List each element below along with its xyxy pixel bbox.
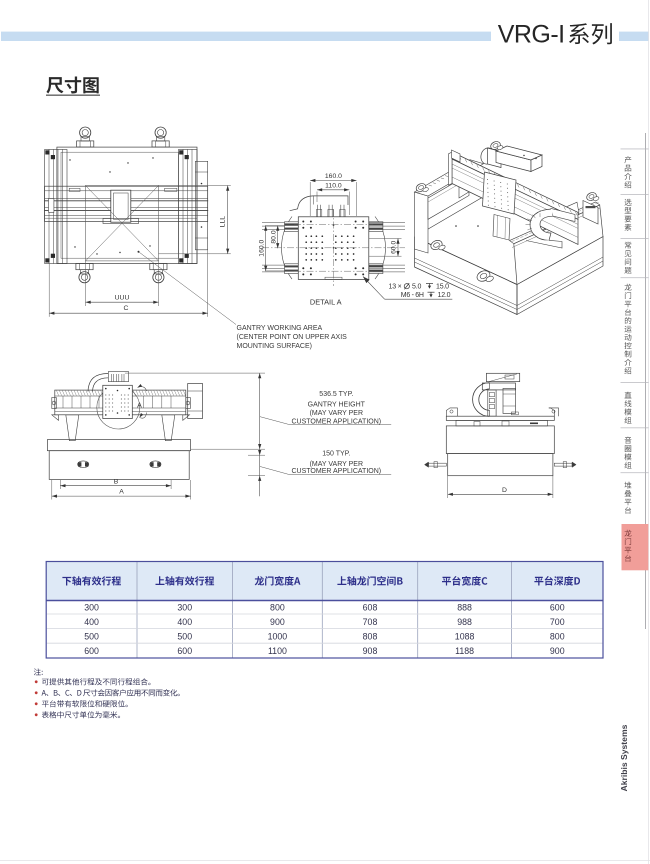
svg-text:150 TYP.: 150 TYP. xyxy=(322,450,350,457)
svg-text:GANTRY WORKING AREA: GANTRY WORKING AREA xyxy=(237,325,323,332)
svg-text:600: 600 xyxy=(84,646,99,656)
svg-text:B: B xyxy=(114,479,119,486)
svg-text:CUSTOMER APPLICATION): CUSTOMER APPLICATION) xyxy=(292,418,382,425)
svg-text:LLL: LLL xyxy=(220,216,227,228)
svg-text:12.0: 12.0 xyxy=(438,292,451,299)
svg-text:MOUNTING SURFACE): MOUNTING SURFACE) xyxy=(237,343,312,350)
svg-text:500: 500 xyxy=(84,632,99,642)
svg-text:908: 908 xyxy=(363,646,378,656)
svg-text:900: 900 xyxy=(550,646,565,656)
svg-text:A: A xyxy=(119,489,124,496)
svg-text:400: 400 xyxy=(84,617,99,627)
svg-text:M6 - 6H: M6 - 6H xyxy=(401,292,424,299)
svg-text:VRG-I: VRG-I xyxy=(498,21,565,49)
svg-text:800: 800 xyxy=(270,602,285,612)
svg-text:1000: 1000 xyxy=(268,632,288,642)
svg-text:DETAIL A: DETAIL A xyxy=(310,298,342,307)
svg-text:500: 500 xyxy=(177,632,192,642)
svg-text:536.5 TYP.: 536.5 TYP. xyxy=(319,391,353,398)
svg-text:110.0: 110.0 xyxy=(325,183,342,190)
svg-text:1100: 1100 xyxy=(268,646,287,656)
svg-text:400: 400 xyxy=(177,617,192,627)
svg-text:80.0: 80.0 xyxy=(270,230,277,243)
svg-text:(CENTER POINT ON UPPER AXIS: (CENTER POINT ON UPPER AXIS xyxy=(237,334,348,341)
svg-text:UUU: UUU xyxy=(115,294,130,301)
svg-text:600: 600 xyxy=(550,602,565,612)
svg-text:13 ×: 13 × xyxy=(389,284,402,291)
svg-text:5.0: 5.0 xyxy=(412,284,421,291)
svg-text:808: 808 xyxy=(363,632,378,642)
svg-text:888: 888 xyxy=(457,602,472,612)
svg-text:1188: 1188 xyxy=(455,646,474,656)
svg-text:CUSTOMER APPLICATION): CUSTOMER APPLICATION) xyxy=(292,468,382,475)
svg-text:700: 700 xyxy=(550,617,565,627)
svg-text:60.0: 60.0 xyxy=(391,240,398,253)
svg-text:988: 988 xyxy=(457,617,472,627)
svg-text:GANTRY HEIGHT: GANTRY HEIGHT xyxy=(308,402,366,409)
svg-text:300: 300 xyxy=(84,602,99,612)
svg-text:1088: 1088 xyxy=(455,632,475,642)
svg-text:C: C xyxy=(124,305,129,312)
svg-text:608: 608 xyxy=(363,602,378,612)
svg-text:708: 708 xyxy=(363,617,378,627)
svg-text:(MAY VARY PER: (MAY VARY PER xyxy=(310,410,363,417)
svg-text:Akribis Systems: Akribis Systems xyxy=(619,724,629,791)
svg-text:D: D xyxy=(502,487,507,494)
svg-text:600: 600 xyxy=(177,646,192,656)
svg-text:160.0: 160.0 xyxy=(325,173,342,180)
svg-text:300: 300 xyxy=(177,602,192,612)
svg-text:15.0: 15.0 xyxy=(436,284,449,291)
svg-text:800: 800 xyxy=(550,632,565,642)
svg-text:(MAY VARY PER: (MAY VARY PER xyxy=(310,461,363,468)
svg-text:900: 900 xyxy=(270,617,285,627)
svg-text:A: A xyxy=(137,403,142,410)
svg-text:160.0: 160.0 xyxy=(258,239,265,256)
